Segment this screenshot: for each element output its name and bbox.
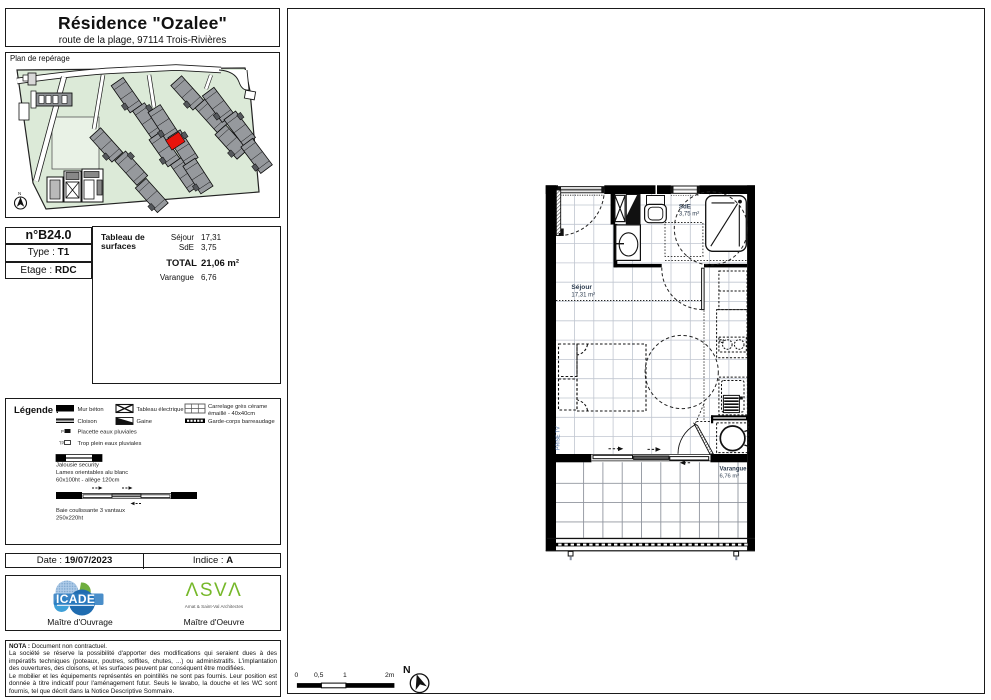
svg-text:Placette eaux pluviales: Placette eaux pluviales [78,430,137,436]
svg-text:6,76 m²: 6,76 m² [720,474,740,480]
svg-text:Baie coulissante 3 vantaux: Baie coulissante 3 vantaux [56,508,125,514]
svg-text:Jalousie security: Jalousie security [56,463,99,469]
svg-text:Garde-corps barreaudage: Garde-corps barreaudage [208,419,275,425]
svg-text:N: N [18,191,21,196]
svg-text:1: 1 [343,672,347,679]
svg-text:250x220ht: 250x220ht [56,516,83,522]
svg-text:PRISE TV: PRISE TV [556,426,562,450]
svg-text:17,31 m²: 17,31 m² [571,293,595,299]
svg-text:Carrelage grès cérame: Carrelage grès cérame [208,404,267,410]
svg-text:Tableau électrique: Tableau électrique [137,407,184,413]
svg-text:Varangue: Varangue [720,467,748,473]
svg-text:0,5: 0,5 [314,672,324,679]
svg-text:60x100ht - allège 120cm: 60x100ht - allège 120cm [56,478,120,484]
svg-text:TP: TP [59,441,65,446]
svg-text:Séjour: Séjour [571,284,592,291]
svg-text:émaillé - 40x40cm: émaillé - 40x40cm [208,411,255,417]
svg-text:Trop plein eaux pluviales: Trop plein eaux pluviales [78,441,142,447]
svg-text:Mur béton: Mur béton [78,407,104,413]
svg-text:P: P [61,429,64,434]
svg-text:ICADE: ICADE [56,592,95,606]
svg-text:3,75 m²: 3,75 m² [679,212,699,218]
svg-text:N: N [403,664,411,676]
svg-text:2m: 2m [385,672,395,679]
svg-text:Lames orientables alu blanc: Lames orientables alu blanc [56,470,128,476]
svg-text:0: 0 [295,672,299,679]
svg-text:Gaine: Gaine [137,419,152,425]
svg-text:Cloison: Cloison [78,419,97,425]
svg-text:SdE: SdE [679,204,691,211]
